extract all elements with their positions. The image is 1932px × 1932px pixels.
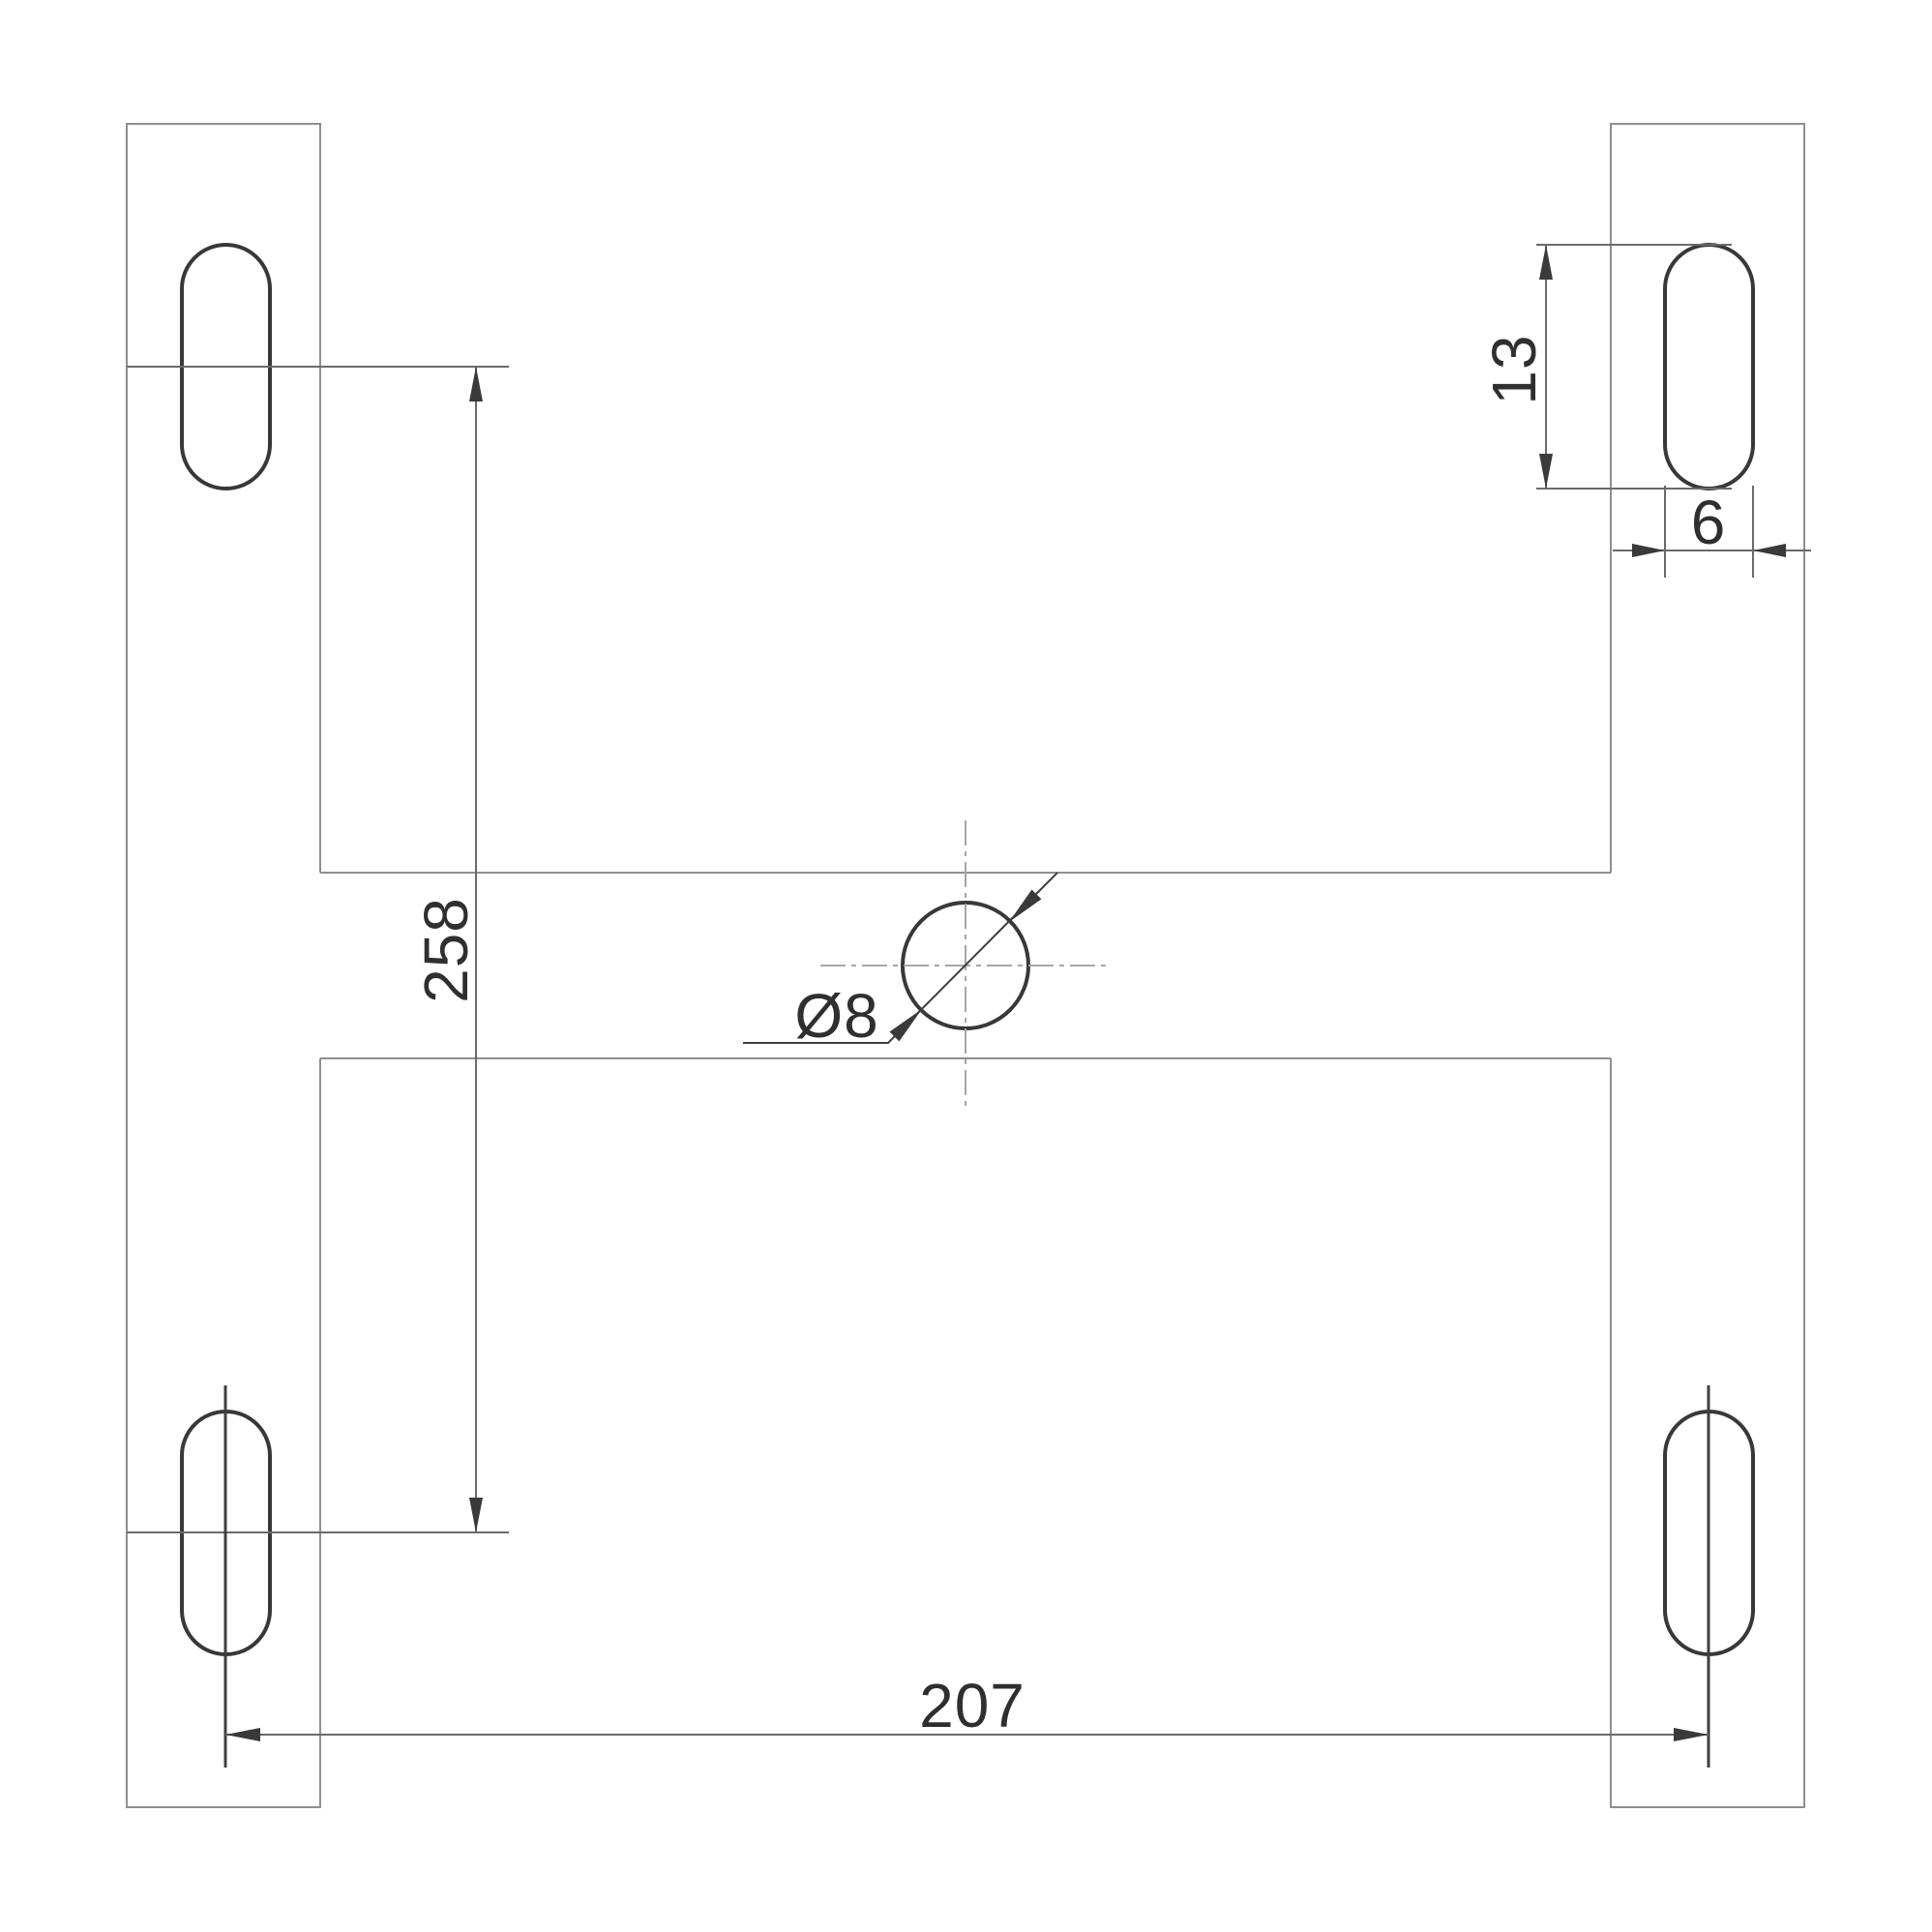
left-flange-outline <box>127 124 320 1807</box>
dim-label-hole-diameter: Ø8 <box>794 981 878 1051</box>
dim-label-258: 258 <box>411 897 481 1003</box>
arrowhead-lower-left <box>890 1009 923 1041</box>
dimension-slot-width: 6 <box>1613 486 1811 578</box>
arrowhead-left <box>225 1728 260 1741</box>
technical-drawing-canvas: 258 207 13 6 Ø8 <box>0 0 1932 1932</box>
arrowhead-up <box>469 367 483 401</box>
leader-line <box>743 873 1057 1043</box>
dim-label-13: 13 <box>1479 334 1549 404</box>
dim-label-207: 207 <box>919 1671 1025 1740</box>
dimension-vertical-spacing: 258 <box>127 367 509 1532</box>
arrowhead-down <box>1539 454 1553 489</box>
arrowhead-down <box>469 1498 483 1532</box>
leader-hole-diameter: Ø8 <box>743 873 1057 1051</box>
arrowhead-left-pointing <box>1753 544 1786 557</box>
dimension-slot-length: 13 <box>1479 245 1732 489</box>
slot-top-right <box>1665 245 1753 489</box>
drawing-page: 258 207 13 6 Ø8 <box>0 0 1932 1932</box>
dimension-horizontal-spacing: 207 <box>225 1385 1709 1768</box>
arrowhead-upper-right <box>1009 890 1041 923</box>
dim-label-6: 6 <box>1691 488 1727 557</box>
arrowhead-right-pointing <box>1632 544 1665 557</box>
arrowhead-right <box>1674 1728 1709 1741</box>
arrowhead-up <box>1539 245 1553 280</box>
